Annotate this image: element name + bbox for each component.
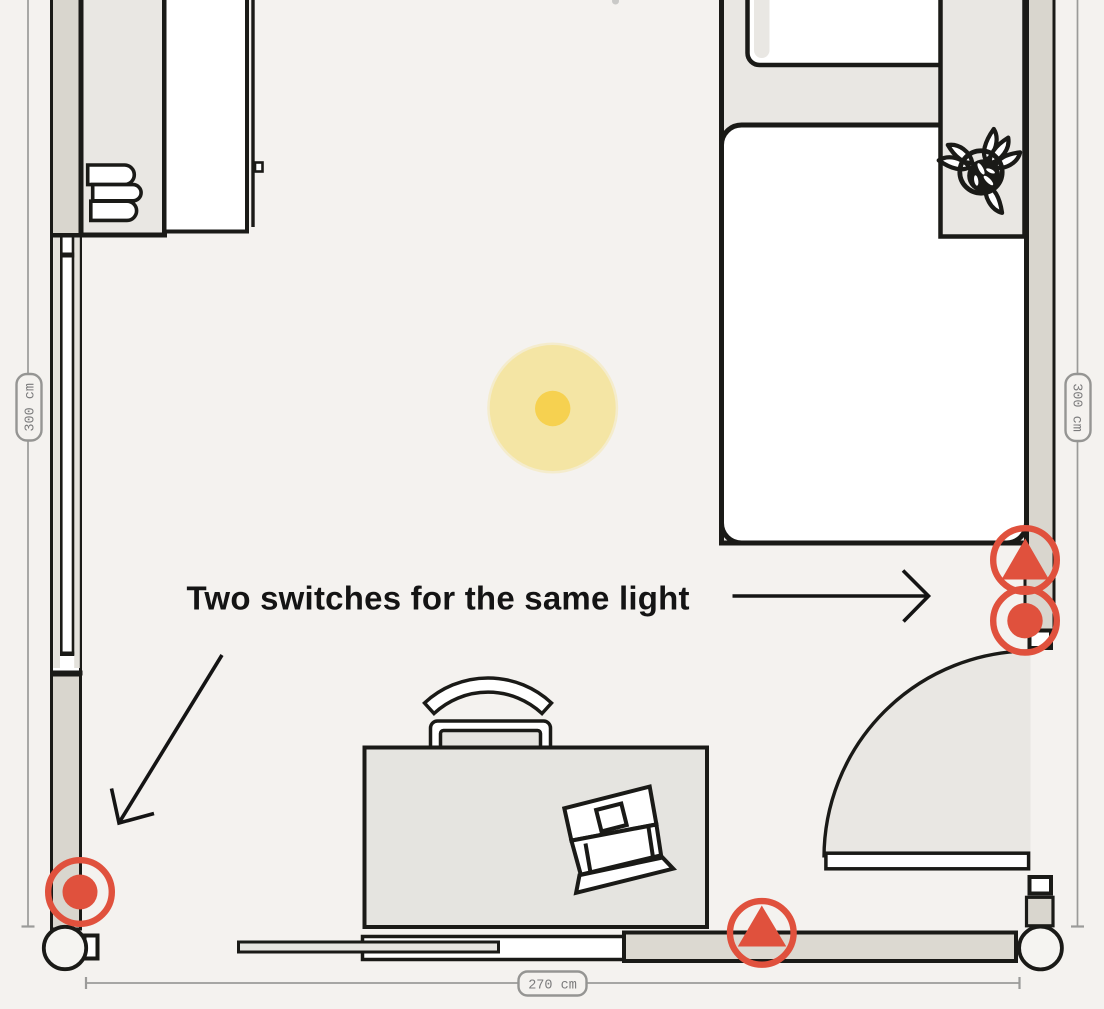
svg-text:300 cm: 300 cm bbox=[24, 383, 39, 432]
svg-text:Two switches for the same ligh: Two switches for the same light bbox=[187, 580, 690, 617]
svg-text:300 cm: 300 cm bbox=[1068, 383, 1083, 432]
svg-text:270 cm: 270 cm bbox=[528, 978, 577, 993]
